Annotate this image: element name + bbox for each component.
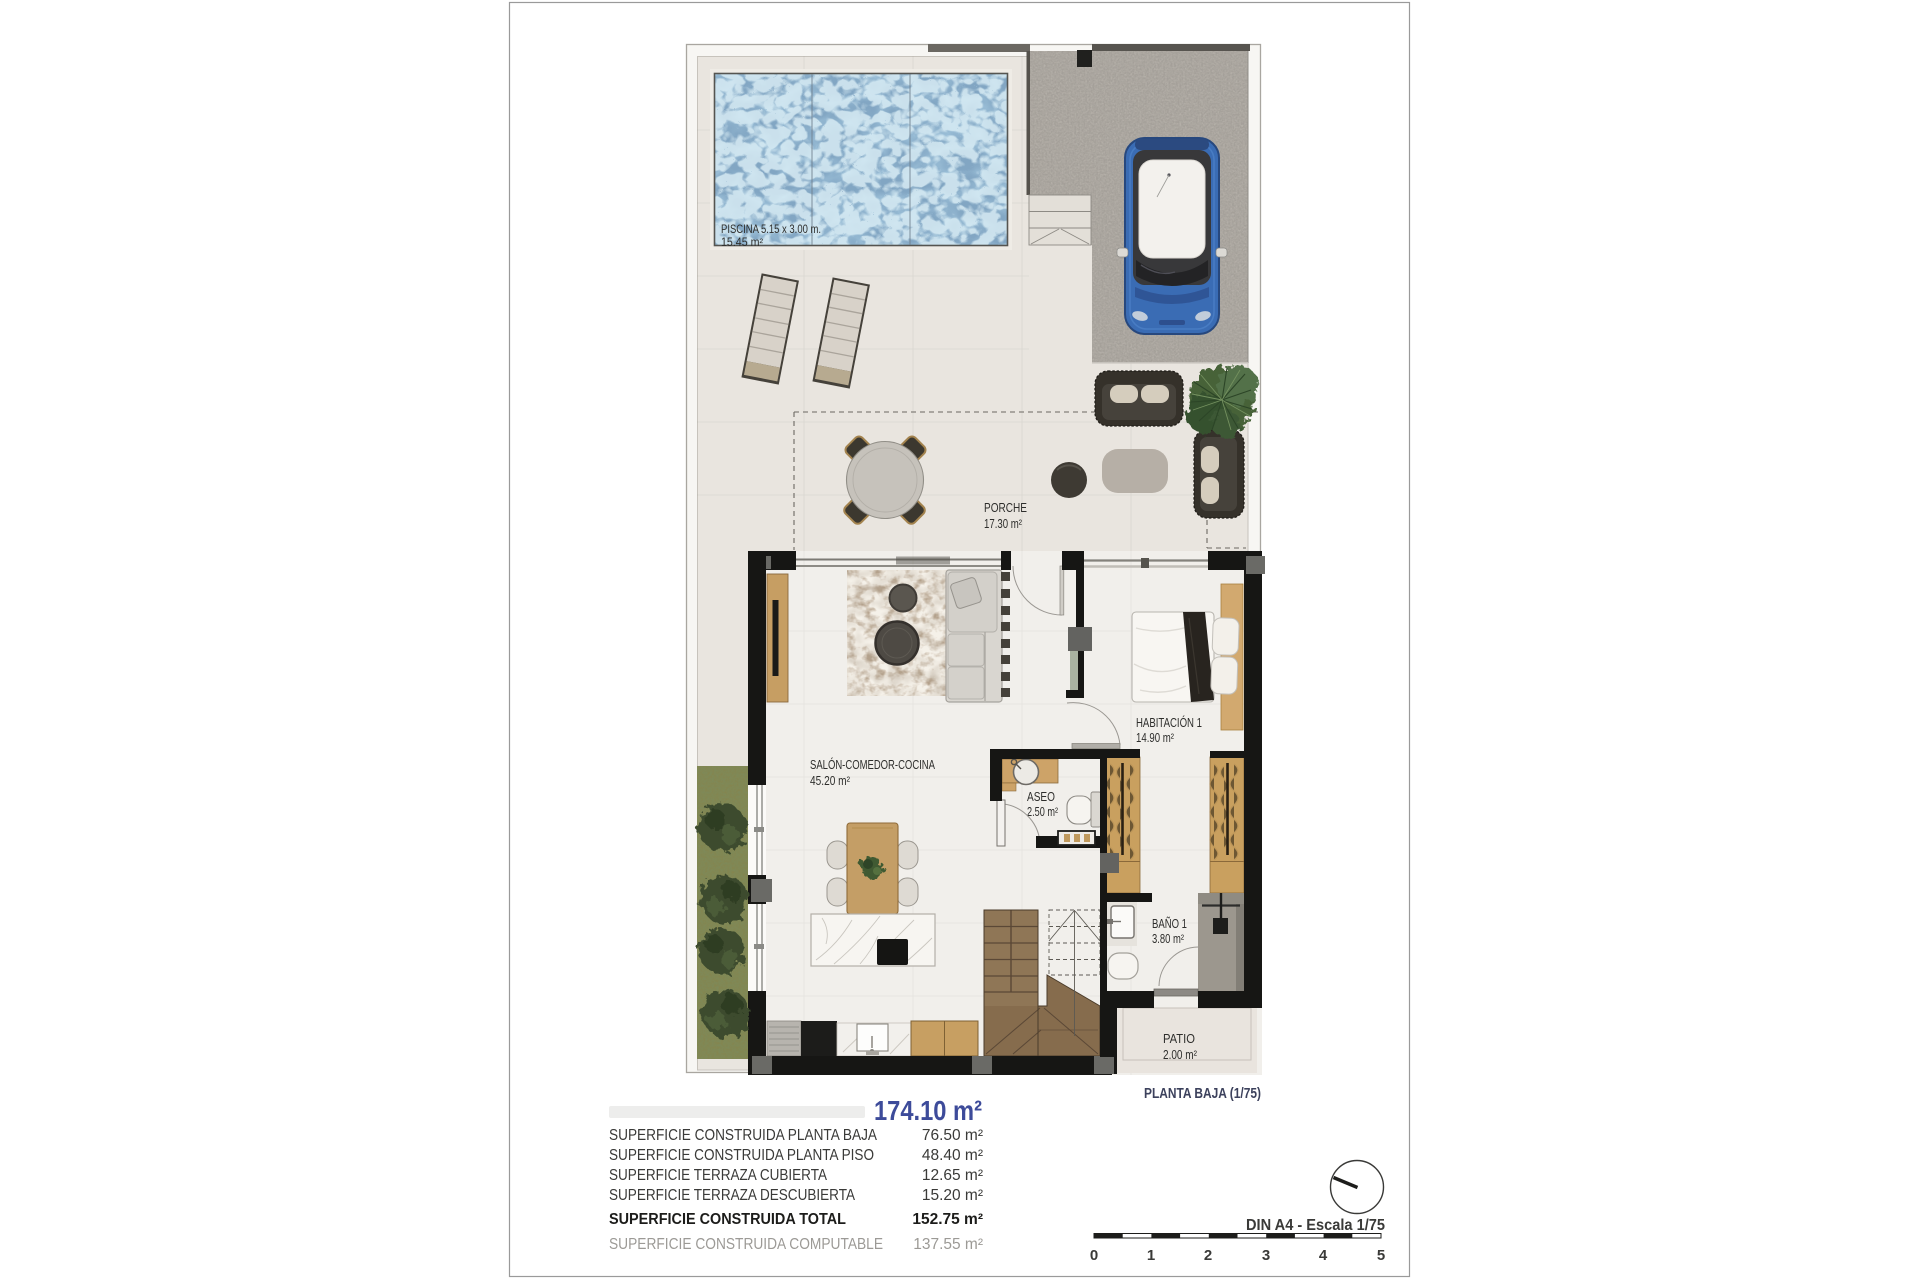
svg-text:0: 0	[1090, 1247, 1098, 1264]
svg-text:76.50 m²: 76.50 m²	[922, 1127, 983, 1144]
svg-text:ASEO: ASEO	[1027, 790, 1055, 804]
svg-text:PISCINA 5.15 x 3.00 m.: PISCINA 5.15 x 3.00 m.	[721, 224, 821, 236]
svg-text:SUPERFICIE CONSTRUIDA PLANTA P: SUPERFICIE CONSTRUIDA PLANTA PISO	[609, 1147, 874, 1164]
svg-text:SUPERFICIE CONSTRUIDA TOTAL: SUPERFICIE CONSTRUIDA TOTAL	[609, 1211, 846, 1228]
svg-text:15.20 m²: 15.20 m²	[922, 1187, 983, 1204]
svg-text:2: 2	[1204, 1247, 1212, 1264]
svg-text:5: 5	[1377, 1247, 1385, 1264]
svg-text:3: 3	[1262, 1247, 1270, 1264]
svg-text:SUPERFICIE CONSTRUIDA PLANTA B: SUPERFICIE CONSTRUIDA PLANTA BAJA	[609, 1127, 878, 1144]
svg-text:2.00 m²: 2.00 m²	[1163, 1048, 1197, 1062]
svg-text:1: 1	[1147, 1247, 1155, 1264]
svg-text:45.20 m²: 45.20 m²	[810, 773, 851, 788]
svg-text:15.45 m²: 15.45 m²	[721, 237, 763, 249]
svg-text:48.40 m²: 48.40 m²	[922, 1147, 983, 1164]
svg-text:PATIO: PATIO	[1163, 1032, 1195, 1046]
svg-text:4: 4	[1319, 1247, 1328, 1264]
svg-text:14.90 m²: 14.90 m²	[1136, 731, 1174, 745]
svg-text:BAÑO 1: BAÑO 1	[1152, 917, 1187, 931]
svg-text:152.75 m²: 152.75 m²	[912, 1211, 983, 1228]
svg-text:SALÓN-COMEDOR-COCINA: SALÓN-COMEDOR-COCINA	[810, 757, 935, 772]
svg-text:SUPERFICIE TERRAZA CUBIERTA: SUPERFICIE TERRAZA CUBIERTA	[609, 1167, 828, 1184]
svg-text:SUPERFICIE TERRAZA DESCUBIERTA: SUPERFICIE TERRAZA DESCUBIERTA	[609, 1187, 856, 1204]
svg-text:PORCHE: PORCHE	[984, 500, 1027, 515]
svg-text:SUPERFICIE CONSTRUIDA COMPUTAB: SUPERFICIE CONSTRUIDA COMPUTABLE	[609, 1236, 883, 1253]
svg-text:HABITACIÓN 1: HABITACIÓN 1	[1136, 715, 1202, 730]
svg-text:3.80 m²: 3.80 m²	[1152, 932, 1184, 946]
svg-text:12.65 m²: 12.65 m²	[922, 1167, 983, 1184]
svg-text:2.50 m²: 2.50 m²	[1027, 805, 1058, 819]
svg-text:17.30 m²: 17.30 m²	[984, 516, 1022, 531]
svg-text:174.10 m²: 174.10 m²	[874, 1095, 982, 1126]
svg-text:137.55 m²: 137.55 m²	[913, 1236, 983, 1253]
svg-text:DIN A4 - Escala 1/75: DIN A4 - Escala 1/75	[1246, 1217, 1385, 1234]
svg-text:PLANTA BAJA (1/75): PLANTA BAJA (1/75)	[1144, 1085, 1261, 1102]
